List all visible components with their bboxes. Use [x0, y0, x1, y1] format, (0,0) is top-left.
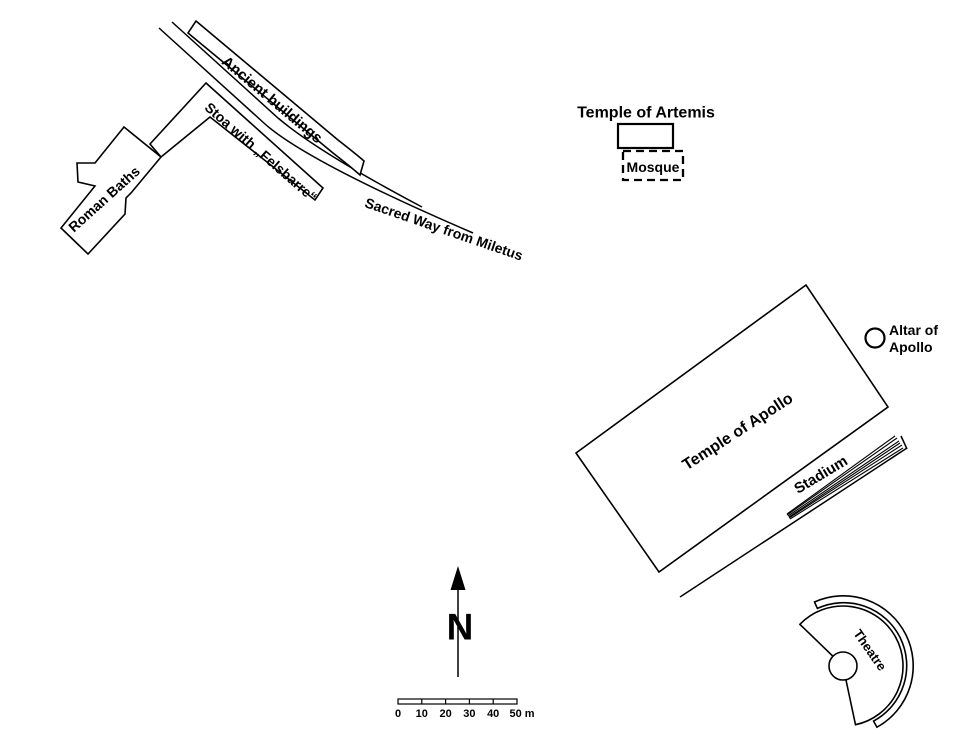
scale-end-label: 50 m: [509, 708, 534, 720]
site-plan-drawing: N 0 10 20 30 40 50 m Ancient buildings S…: [0, 0, 960, 744]
stadium-end-tick: [901, 436, 907, 449]
sacred-way-label: Sacred Way from Miletus: [363, 194, 525, 263]
didyma-site-plan: N 0 10 20 30 40 50 m Ancient buildings S…: [0, 0, 960, 744]
scale-tick-label-20: 20: [439, 708, 451, 720]
scale-tick-label-0: 0: [395, 708, 401, 720]
north-arrow: N: [447, 566, 474, 677]
scale-tick-label-30: 30: [463, 708, 475, 720]
scale-bar-body: [398, 699, 517, 704]
altar-of-apollo-label-line1: Altar of: [889, 322, 938, 338]
altar-of-apollo-shape: [866, 329, 885, 348]
scale-tick-label-40: 40: [487, 708, 499, 720]
scale-bar: 0 10 20 30 40 50 m: [395, 699, 535, 720]
north-label: N: [447, 607, 474, 648]
scale-tick-label-10: 10: [416, 708, 428, 720]
altar-of-apollo-label-line2: Apollo: [889, 339, 933, 355]
temple-of-artemis-shape: [618, 124, 673, 148]
mosque-label: Mosque: [627, 159, 680, 175]
north-arrow-head: [451, 566, 466, 590]
theatre-orchestra-circle: [829, 652, 857, 680]
temple-of-artemis-label: Temple of Artemis: [577, 105, 715, 122]
